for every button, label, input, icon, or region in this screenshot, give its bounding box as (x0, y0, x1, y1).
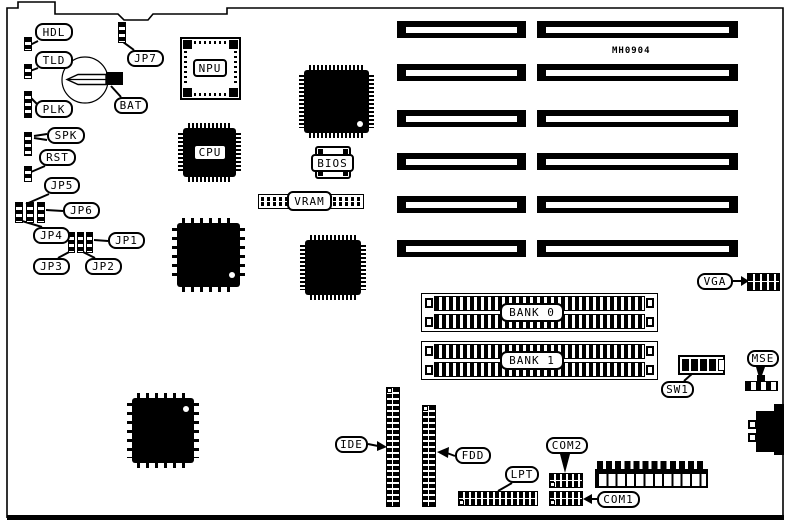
spk-label: SPK (47, 127, 85, 144)
hdl-header (24, 37, 32, 51)
keyboard-connector-pin2 (748, 433, 757, 442)
jp3-label: JP3 (33, 258, 70, 275)
jumper-block-a-col1 (15, 202, 23, 223)
isa-slot-4-right (537, 153, 738, 170)
bat-label: BAT (114, 97, 148, 114)
bank0-label: BANK 0 (500, 303, 564, 322)
hdl-label: HDL (35, 23, 73, 41)
bios-label: BIOS (311, 154, 354, 172)
jumper-block-a-col3 (37, 202, 45, 223)
isa-slot-3-right (537, 110, 738, 127)
board-bottom-edge (7, 515, 784, 520)
fdd-label: FDD (455, 447, 491, 464)
motherboard-diagram: NPU CPU BIOS VRAM MH090 (0, 0, 791, 527)
vga-label: VGA (697, 273, 733, 290)
chipset-chip-1 (177, 223, 240, 287)
com1-label: COM1 (597, 491, 640, 508)
fdd-header (422, 405, 436, 507)
rst-header (24, 166, 32, 182)
cpu-label: CPU (193, 144, 227, 161)
isa-slot-1-right (537, 21, 738, 38)
isa-slot-6-right (537, 240, 738, 257)
tld-header (24, 64, 32, 79)
plk-header (24, 91, 32, 118)
jp5-label: JP5 (44, 177, 80, 194)
tld-label: TLD (35, 51, 73, 69)
isa-slot-2-left (397, 64, 526, 81)
isa-slot-5-right (537, 196, 738, 213)
jp7-label: JP7 (127, 50, 164, 67)
isa-slot-1-left (397, 21, 526, 38)
jumper-block-b-col2 (77, 232, 84, 253)
sw1-dip-switch (678, 355, 725, 375)
jp1-label: JP1 (108, 232, 145, 249)
chipset-chip-3 (305, 240, 361, 295)
isa-slot-4-left (397, 153, 526, 170)
vga-header (747, 273, 780, 291)
com2-label: COM2 (546, 437, 588, 454)
jp6-label: JP6 (63, 202, 100, 219)
com2-header (549, 473, 583, 488)
jp2-label: JP2 (85, 258, 122, 275)
isa-slot-3-left (397, 110, 526, 127)
isa-slot-6-left (397, 240, 526, 257)
power-connector (595, 461, 708, 489)
jp4-label: JP4 (33, 227, 70, 244)
vram-label: VRAM (287, 191, 332, 211)
plk-label: PLK (35, 100, 73, 118)
io-controller-chip (132, 398, 194, 463)
jumper-block-a-col2 (26, 202, 34, 223)
mse-label: MSE (747, 350, 779, 367)
com1-header (549, 491, 583, 506)
sw1-label: SW1 (661, 381, 694, 398)
isa-slot-5-left (397, 196, 526, 213)
bank1-label: BANK 1 (500, 351, 564, 370)
mse-connector (745, 381, 778, 391)
isa-slot-2-right (537, 64, 738, 81)
jp7-header (118, 22, 126, 43)
keyboard-connector-pin1 (748, 420, 757, 429)
part-number-text: MH0904 (612, 46, 651, 56)
jumper-block-b-col3 (86, 232, 93, 253)
ide-header (386, 387, 400, 507)
ide-label: IDE (335, 436, 368, 453)
npu-label: NPU (193, 59, 227, 77)
chipset-chip-2 (304, 70, 369, 133)
spk-header (24, 132, 32, 156)
rst-label: RST (39, 149, 76, 166)
lpt-header (458, 491, 538, 506)
keyboard-connector-flange (774, 404, 784, 455)
lpt-label: LPT (505, 466, 539, 483)
